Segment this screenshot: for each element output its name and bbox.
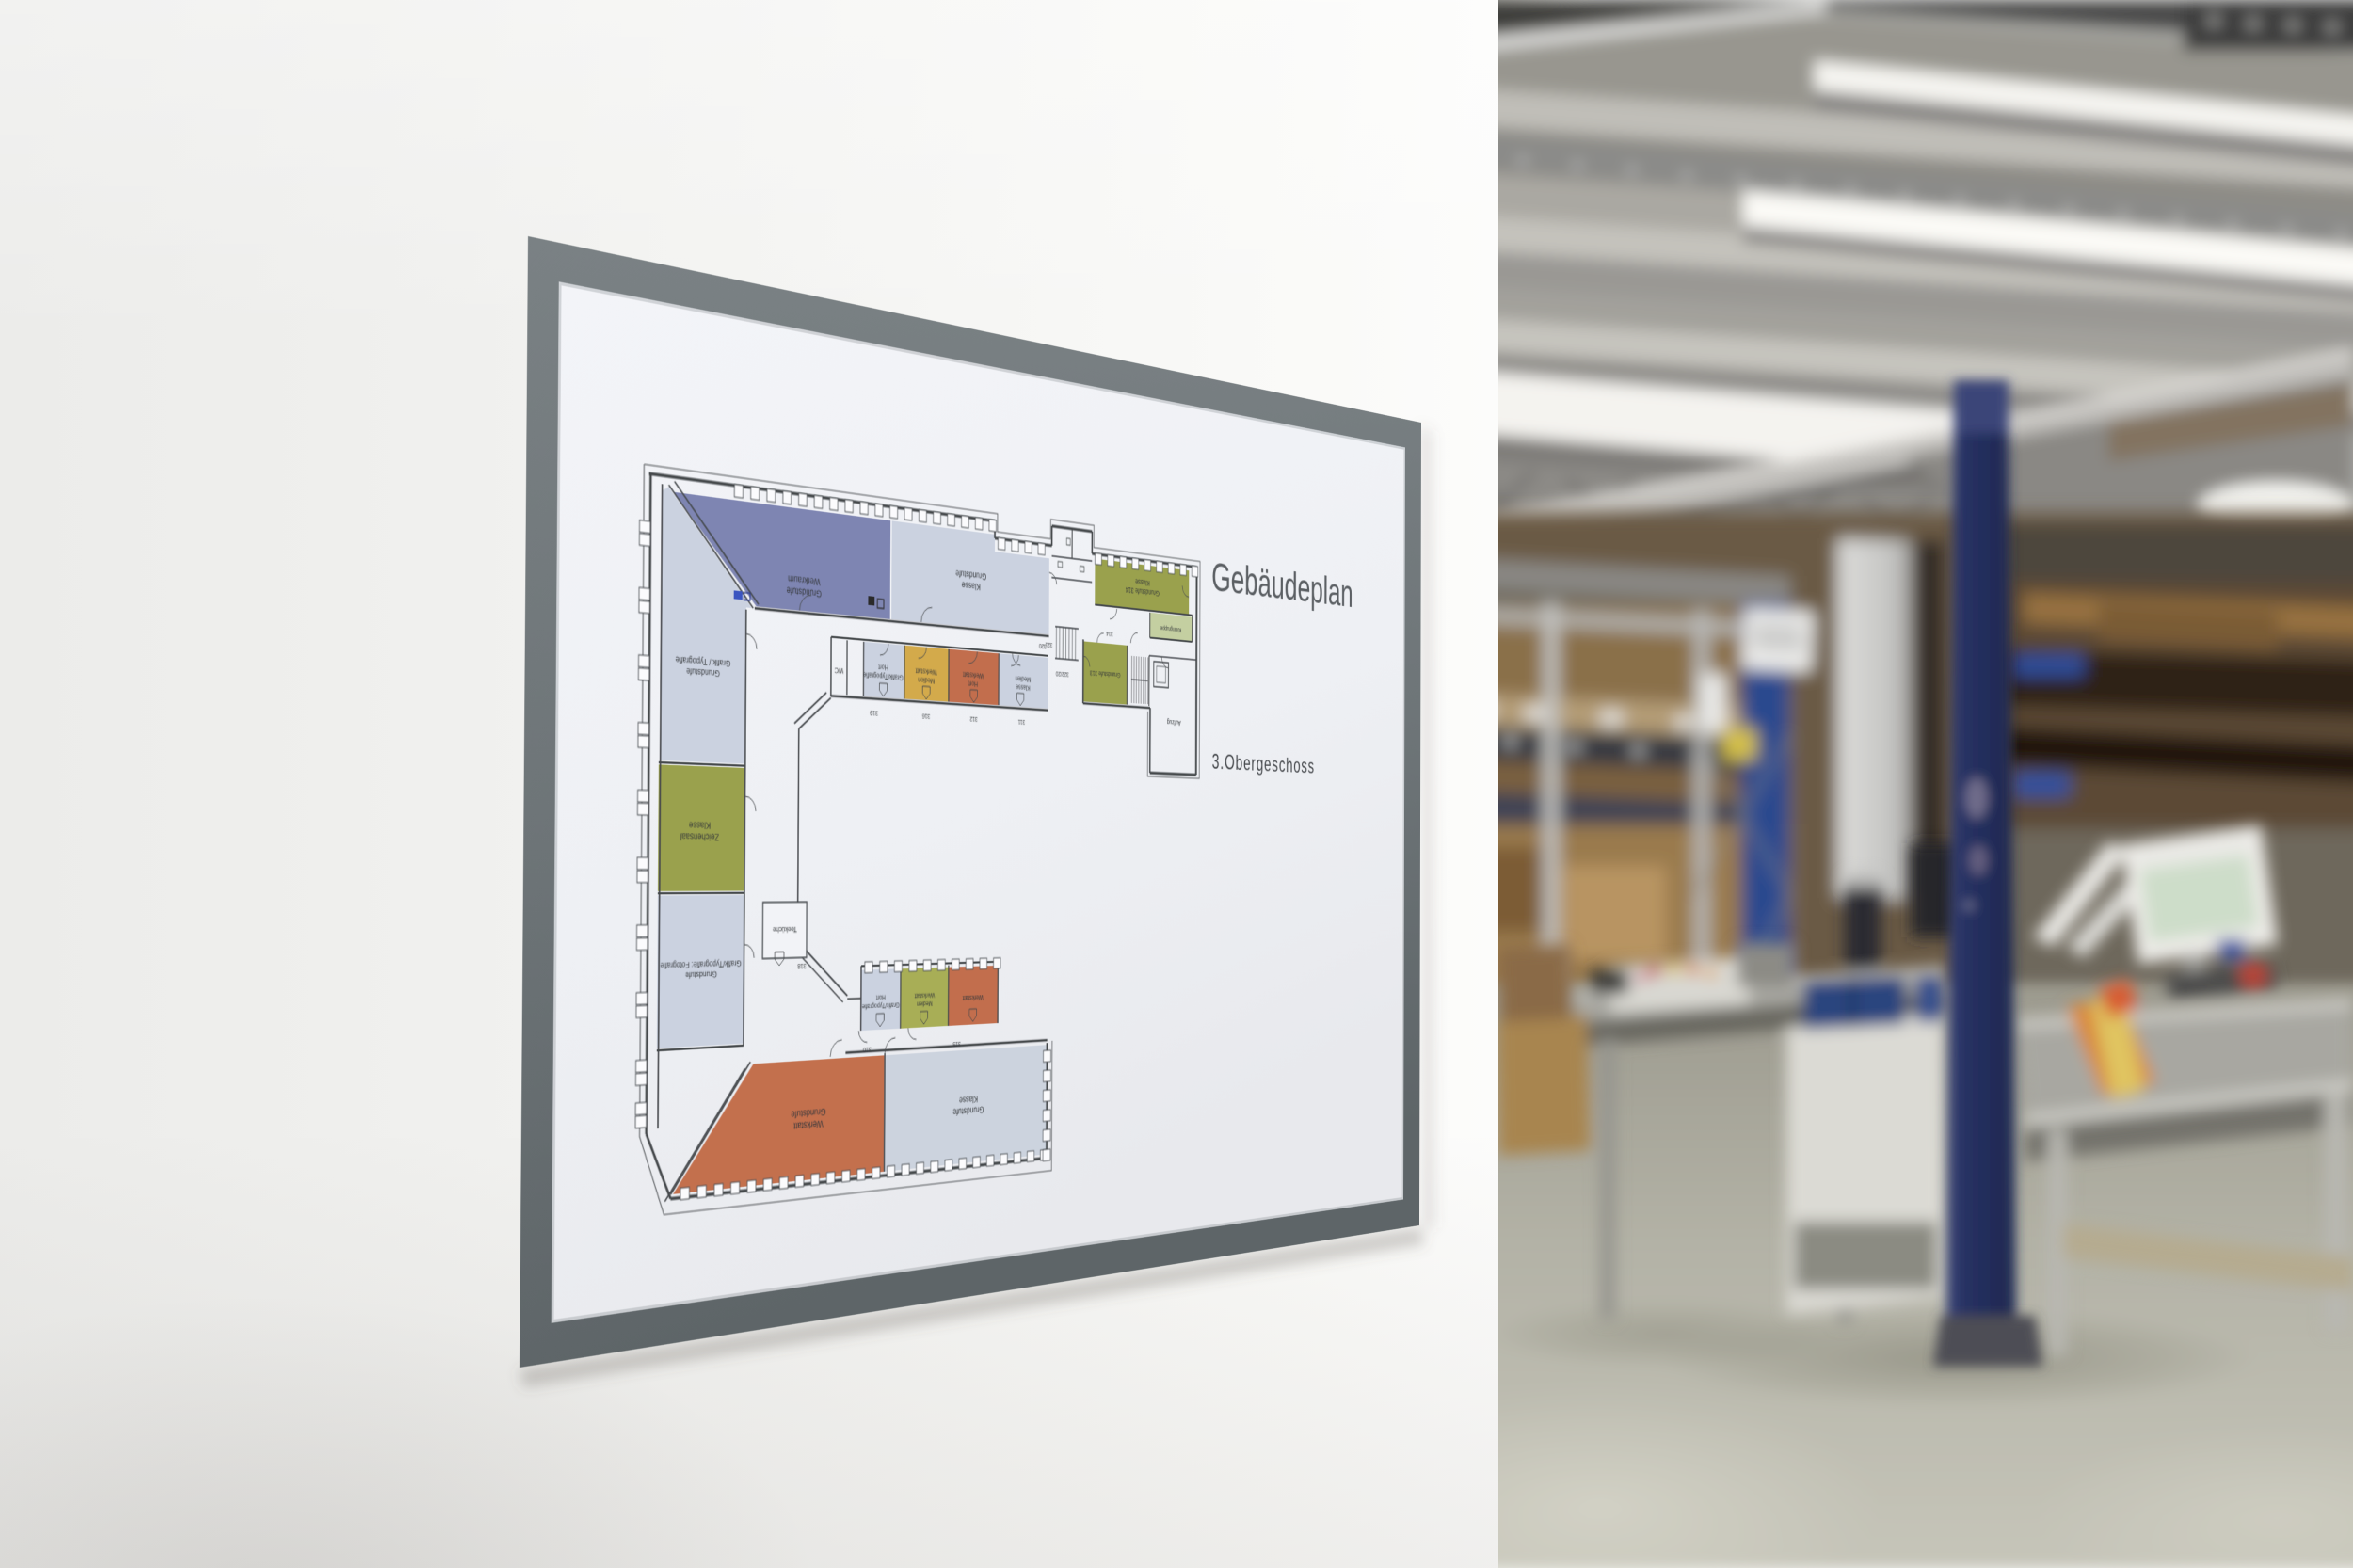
svg-text:311: 311	[1017, 718, 1025, 726]
svg-text:320: 320	[1039, 642, 1047, 649]
svg-text:Werkstatt: Werkstatt	[962, 993, 983, 1002]
svg-text:314: 314	[1106, 630, 1113, 637]
svg-text:Werkstatt: Werkstatt	[963, 670, 984, 680]
svg-text:Teeküche: Teeküche	[773, 925, 797, 935]
svg-text:321: 321	[1045, 641, 1052, 648]
svg-text:312: 312	[969, 715, 977, 723]
svg-text:Hort: Hort	[878, 663, 888, 672]
svg-text:Klasse: Klasse	[1135, 577, 1150, 587]
svg-text:Medien: Medien	[917, 1000, 933, 1008]
svg-text:Werkstatt: Werkstatt	[914, 991, 935, 1000]
svg-text:Medien: Medien	[1016, 675, 1032, 684]
svg-text:Klasse: Klasse	[959, 1094, 978, 1105]
svg-text:WC: WC	[835, 666, 844, 676]
svg-text:Klasse: Klasse	[689, 820, 711, 831]
svg-text:316: 316	[922, 712, 931, 721]
svg-text:Klasse: Klasse	[962, 580, 981, 592]
svg-text:Grundstufe: Grundstufe	[685, 969, 717, 980]
svg-text:Zeichensaal: Zeichensaal	[680, 831, 719, 842]
svg-text:3.Obergeschoss: 3.Obergeschoss	[1212, 750, 1315, 778]
svg-text:Werkstatt: Werkstatt	[915, 666, 936, 677]
svg-text:322/20: 322/20	[1056, 670, 1069, 679]
svg-text:310: 310	[863, 1046, 872, 1054]
svg-text:Hort: Hort	[968, 680, 978, 689]
svg-text:Hort: Hort	[876, 993, 886, 1001]
svg-text:319: 319	[870, 709, 878, 717]
svg-text:315: 315	[952, 1040, 961, 1048]
svg-text:318: 318	[797, 962, 807, 970]
svg-text:Aufzug: Aufzug	[1167, 718, 1181, 727]
